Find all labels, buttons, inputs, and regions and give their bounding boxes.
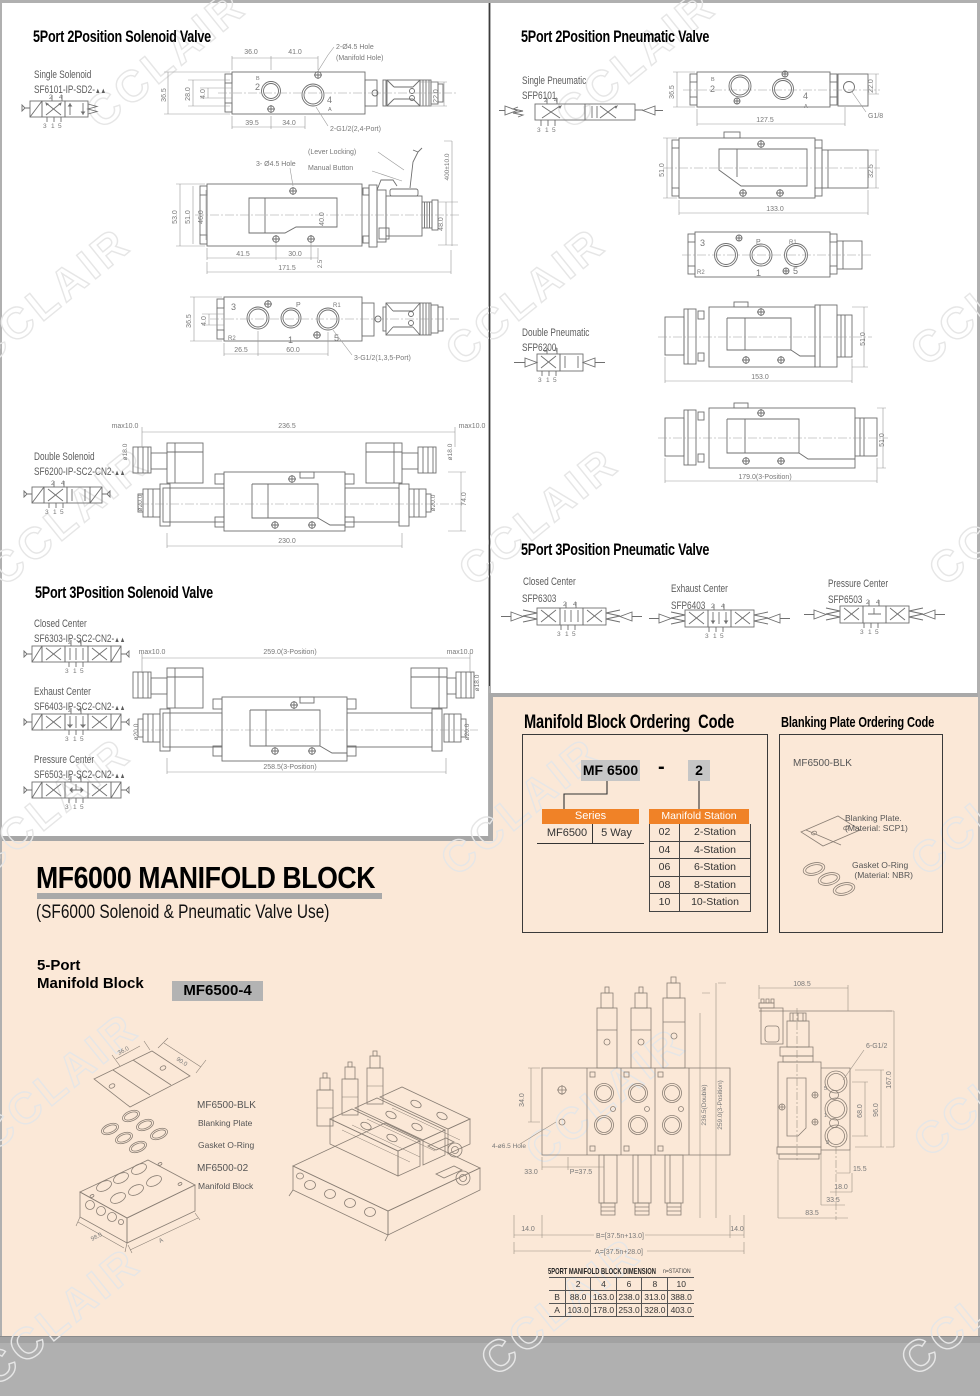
svg-text:1: 1: [546, 377, 550, 384]
svg-text:2-G1/2(2,4-Port): 2-G1/2(2,4-Port): [330, 126, 381, 133]
svg-text:Manual Button: Manual Button: [308, 165, 353, 172]
svg-text:A: A: [328, 107, 332, 113]
svg-text:4.0: 4.0: [201, 316, 208, 326]
svg-text:3: 3: [65, 804, 69, 811]
svg-text:26.5: 26.5: [234, 347, 248, 354]
svg-text:ø18.0: ø18.0: [447, 443, 454, 460]
svg-text:B: B: [256, 76, 260, 82]
svg-text:5: 5: [793, 266, 798, 276]
svg-text:4.0: 4.0: [200, 89, 207, 99]
svg-text:1: 1: [53, 509, 57, 516]
svg-text:1: 1: [545, 127, 549, 134]
svg-text:3: 3: [538, 377, 542, 384]
svg-text:30.0: 30.0: [288, 251, 302, 258]
svg-text:2: 2: [711, 603, 715, 610]
svg-text:1: 1: [565, 631, 569, 638]
svg-text:36.5: 36.5: [669, 85, 676, 99]
svg-text:259.0(3-Position): 259.0(3-Position): [263, 649, 316, 656]
svg-text:33.5: 33.5: [826, 1197, 840, 1204]
svg-text:A: A: [804, 104, 808, 110]
svg-text:3: 3: [65, 668, 69, 675]
svg-text:96.0: 96.0: [873, 1103, 880, 1117]
svg-text:max10.0: max10.0: [112, 423, 139, 430]
svg-text:36.0: 36.0: [117, 1046, 131, 1057]
svg-text:6-G1/2: 6-G1/2: [866, 1043, 888, 1050]
svg-text:2-Ø4.5 Hole: 2-Ø4.5 Hole: [336, 44, 374, 51]
svg-text:258.5(3-Position): 258.5(3-Position): [263, 764, 316, 771]
svg-text:1: 1: [51, 123, 55, 130]
svg-text:15.5: 15.5: [853, 1166, 867, 1173]
svg-text:51.0: 51.0: [879, 433, 886, 447]
svg-text:179.0(3-Position): 179.0(3-Position): [738, 474, 791, 481]
svg-text:18.0: 18.0: [834, 1184, 848, 1191]
svg-text:3: 3: [557, 631, 561, 638]
svg-text:48.0: 48.0: [438, 217, 445, 231]
svg-text:2: 2: [563, 601, 567, 608]
svg-text:5: 5: [58, 123, 62, 130]
svg-text:G1/8: G1/8: [868, 113, 883, 120]
svg-text:28.0: 28.0: [185, 87, 192, 101]
svg-text:74.0: 74.0: [461, 492, 468, 506]
svg-text:ø20.0: ø20.0: [133, 723, 140, 740]
svg-text:ø20.0: ø20.0: [137, 494, 144, 511]
svg-text:236.5(Double): 236.5(Double): [701, 1084, 708, 1125]
svg-text:1: 1: [713, 633, 717, 640]
svg-text:ø18.0: ø18.0: [474, 674, 481, 691]
svg-text:36.5: 36.5: [161, 88, 168, 102]
svg-text:46.0: 46.0: [198, 210, 205, 224]
svg-text:ø18.0: ø18.0: [122, 443, 129, 460]
svg-text:3: 3: [65, 736, 69, 743]
svg-text:4: 4: [803, 91, 808, 101]
svg-text:51.0: 51.0: [659, 163, 666, 177]
svg-text:B: B: [711, 77, 715, 83]
svg-text:1: 1: [756, 268, 761, 278]
svg-text:P: P: [296, 302, 301, 309]
svg-text:R2: R2: [228, 336, 236, 342]
svg-text:3: 3: [45, 509, 49, 516]
svg-text:4-ø6.5 Hole: 4-ø6.5 Hole: [492, 1143, 526, 1150]
svg-text:230.0: 230.0: [278, 538, 296, 545]
svg-text:1: 1: [288, 335, 293, 345]
svg-text:3: 3: [860, 629, 864, 636]
svg-text:5: 5: [553, 377, 557, 384]
svg-text:P: P: [756, 239, 761, 246]
svg-text:127.5: 127.5: [756, 117, 774, 124]
svg-text:133.0: 133.0: [766, 206, 784, 213]
svg-text:400±10.0: 400±10.0: [444, 153, 451, 180]
svg-text:3: 3: [705, 633, 709, 640]
svg-text:33.0: 33.0: [524, 1169, 538, 1176]
svg-text:(Lever Locking): (Lever Locking): [308, 149, 356, 156]
svg-text:259.0(3-Position): 259.0(3-Position): [717, 1080, 724, 1130]
svg-text:2: 2: [255, 82, 260, 92]
svg-text:4: 4: [61, 480, 65, 487]
svg-text:83.5: 83.5: [805, 1210, 819, 1217]
svg-text:1: 1: [73, 804, 77, 811]
svg-text:3: 3: [700, 238, 705, 248]
svg-text:236.5: 236.5: [278, 423, 296, 430]
svg-text:4: 4: [573, 601, 577, 608]
svg-text:5: 5: [60, 509, 64, 516]
svg-text:R1: R1: [789, 240, 797, 246]
svg-text:3-G1/2(1,3,5-Port): 3-G1/2(1,3,5-Port): [354, 355, 411, 362]
svg-text:ø20.0: ø20.0: [464, 723, 471, 740]
svg-text:34.0: 34.0: [519, 1093, 526, 1107]
svg-text:51.0: 51.0: [860, 332, 867, 346]
svg-text:5: 5: [552, 127, 556, 134]
svg-text:1: 1: [824, 1113, 827, 1119]
svg-text:4: 4: [327, 95, 332, 105]
svg-text:90.0: 90.0: [175, 1057, 189, 1069]
svg-text:4: 4: [721, 603, 725, 610]
svg-text:14.0: 14.0: [521, 1226, 535, 1233]
svg-text:41.5: 41.5: [236, 251, 250, 258]
svg-text:167.0: 167.0: [886, 1071, 893, 1089]
svg-text:(Manifold Hole): (Manifold Hole): [336, 55, 383, 62]
svg-text:60.0: 60.0: [286, 347, 300, 354]
svg-text:36.0: 36.0: [244, 49, 258, 56]
svg-text:22.0: 22.0: [433, 89, 440, 103]
svg-text:5: 5: [80, 736, 84, 743]
svg-text:32.5: 32.5: [868, 164, 875, 178]
svg-text:5: 5: [334, 333, 339, 343]
svg-text:1: 1: [868, 629, 872, 636]
svg-text:3: 3: [537, 127, 541, 134]
svg-text:R1: R1: [333, 303, 341, 309]
svg-text:max10.0: max10.0: [139, 649, 166, 656]
svg-text:A=[37.5n+28.0]: A=[37.5n+28.0]: [595, 1249, 643, 1256]
svg-text:3: 3: [43, 123, 47, 130]
svg-text:14.0: 14.0: [730, 1226, 744, 1233]
svg-text:P=37.5: P=37.5: [570, 1169, 592, 1176]
svg-text:5: 5: [572, 631, 576, 638]
svg-text:1: 1: [73, 736, 77, 743]
svg-text:2.5: 2.5: [318, 259, 324, 268]
svg-text:53.0: 53.0: [172, 210, 179, 224]
svg-text:41.0: 41.0: [288, 49, 302, 56]
svg-text:34.0: 34.0: [282, 120, 296, 127]
svg-text:36.5: 36.5: [186, 314, 193, 328]
svg-text:5: 5: [875, 629, 879, 636]
svg-text:B=[37.5n+13.0]: B=[37.5n+13.0]: [596, 1233, 644, 1240]
svg-text:2: 2: [710, 84, 715, 94]
svg-text:153.0: 153.0: [751, 374, 769, 381]
svg-text:5: 5: [80, 668, 84, 675]
svg-text:3: 3: [231, 302, 236, 312]
svg-text:max10.0: max10.0: [447, 649, 474, 656]
svg-text:ø20.0: ø20.0: [430, 494, 437, 511]
svg-text:40.0: 40.0: [319, 212, 326, 226]
svg-text:A: A: [158, 1238, 164, 1245]
svg-text:4: 4: [876, 599, 880, 606]
svg-text:5: 5: [80, 804, 84, 811]
svg-text:1: 1: [73, 668, 77, 675]
svg-text:3: 3: [826, 1140, 829, 1146]
svg-text:max10.0: max10.0: [459, 423, 486, 430]
svg-text:108.5: 108.5: [793, 981, 811, 988]
svg-text:39.5: 39.5: [245, 120, 259, 127]
svg-text:5: 5: [824, 1086, 827, 1092]
svg-text:3- Ø4.5 Hole: 3- Ø4.5 Hole: [256, 161, 296, 168]
svg-text:51.0: 51.0: [185, 210, 192, 224]
svg-text:22.0: 22.0: [868, 79, 875, 93]
svg-text:5: 5: [720, 633, 724, 640]
svg-text:98.0: 98.0: [90, 1232, 104, 1243]
svg-text:171.5: 171.5: [278, 265, 296, 272]
svg-text:2: 2: [866, 599, 870, 606]
svg-text:R2: R2: [697, 270, 705, 276]
svg-text:68.0: 68.0: [857, 1104, 864, 1118]
svg-text:2: 2: [51, 480, 55, 487]
